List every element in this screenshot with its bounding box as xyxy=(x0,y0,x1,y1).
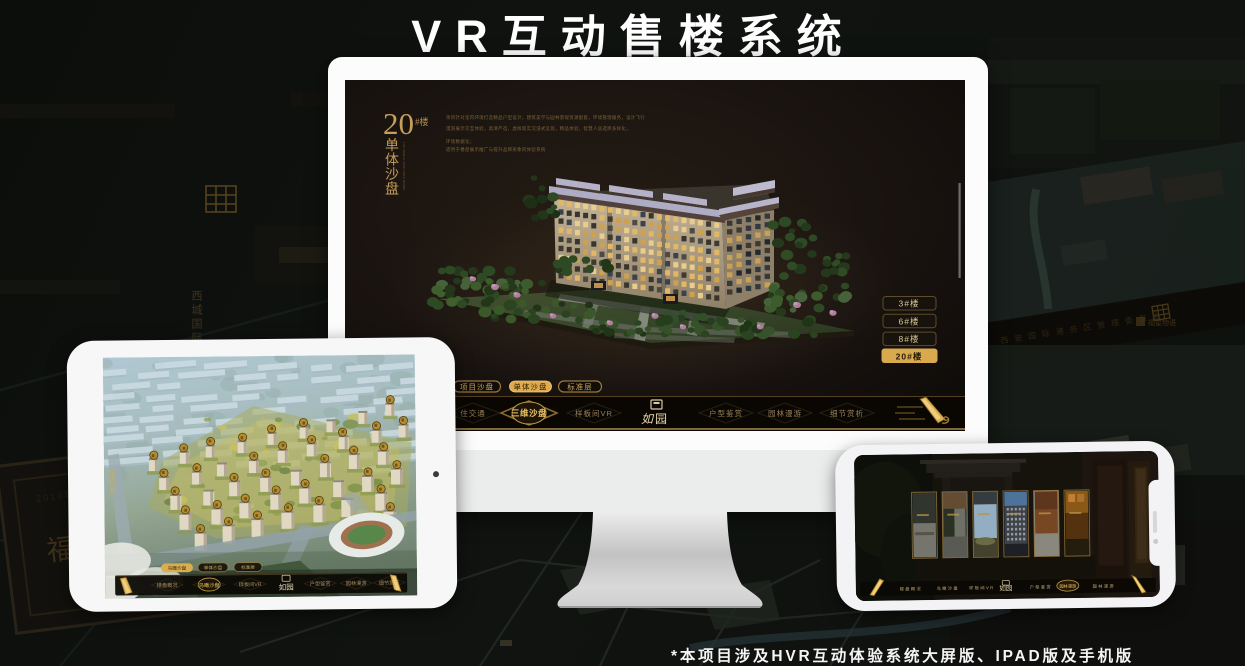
svg-text:园林漫游: 园林漫游 xyxy=(768,408,802,418)
svg-text:细节赏析: 细节赏析 xyxy=(830,408,864,418)
svg-text:三维沙盘: 三维沙盘 xyxy=(511,408,547,418)
svg-text:THE SINGLE SAND TABLE MODEL: THE SINGLE SAND TABLE MODEL xyxy=(402,142,406,191)
svg-text:标准层: 标准层 xyxy=(567,382,593,392)
svg-text:户型鉴赏: 户型鉴赏 xyxy=(310,579,331,587)
svg-text:20#楼: 20#楼 xyxy=(896,352,923,362)
svg-text:单体沙盘: 单体沙盘 xyxy=(514,382,548,392)
svg-text:项目针对室内环境打造精品户型设计，建筑美学与园林景观资源配套: 项目针对室内环境打造精品户型设计，建筑美学与园林景观资源配套，环境管理服务，设计… xyxy=(446,114,645,121)
svg-text:单体沙盘: 单体沙盘 xyxy=(385,138,399,198)
svg-text:#楼: #楼 xyxy=(415,116,429,127)
svg-text:样板间VR: 样板间VR xyxy=(239,580,262,588)
svg-text:3#楼: 3#楼 xyxy=(899,299,920,309)
svg-text:8#楼: 8#楼 xyxy=(899,334,920,344)
svg-text:西城国际: 西城国际 xyxy=(190,290,203,346)
svg-text:6#楼: 6#楼 xyxy=(899,316,920,326)
svg-text:样板间VR: 样板间VR xyxy=(575,408,613,418)
svg-text:漫游展示交互体验，高清严选，虚拟现实沉浸式呈现，精品体验，智: 漫游展示交互体验，高清严选，虚拟现实沉浸式呈现，精品体验，智慧人居选择多样化， xyxy=(446,125,631,132)
svg-text:项目沙盘: 项目沙盘 xyxy=(460,382,494,392)
svg-text:如: 如 xyxy=(641,412,655,426)
svg-text:适用于楼盘展示推广与提升品牌形象的体验系统: 适用于楼盘展示推广与提升品牌形象的体验系统 xyxy=(446,146,546,153)
svg-text:环境数据化；: 环境数据化； xyxy=(446,138,474,145)
svg-text:如园: 如园 xyxy=(279,582,294,592)
svg-text:园林漫游: 园林漫游 xyxy=(346,579,367,587)
svg-text:园: 园 xyxy=(655,412,667,426)
svg-text:20: 20 xyxy=(383,106,414,141)
svg-text:户型鉴赏: 户型鉴赏 xyxy=(709,408,743,418)
svg-text:楼盘概况: 楼盘概况 xyxy=(157,581,179,589)
svg-text:福星物语: 福星物语 xyxy=(1148,318,1176,327)
svg-text:住交通: 住交通 xyxy=(460,408,486,418)
svg-text:鸟瞰沙盘: 鸟瞰沙盘 xyxy=(199,581,220,589)
